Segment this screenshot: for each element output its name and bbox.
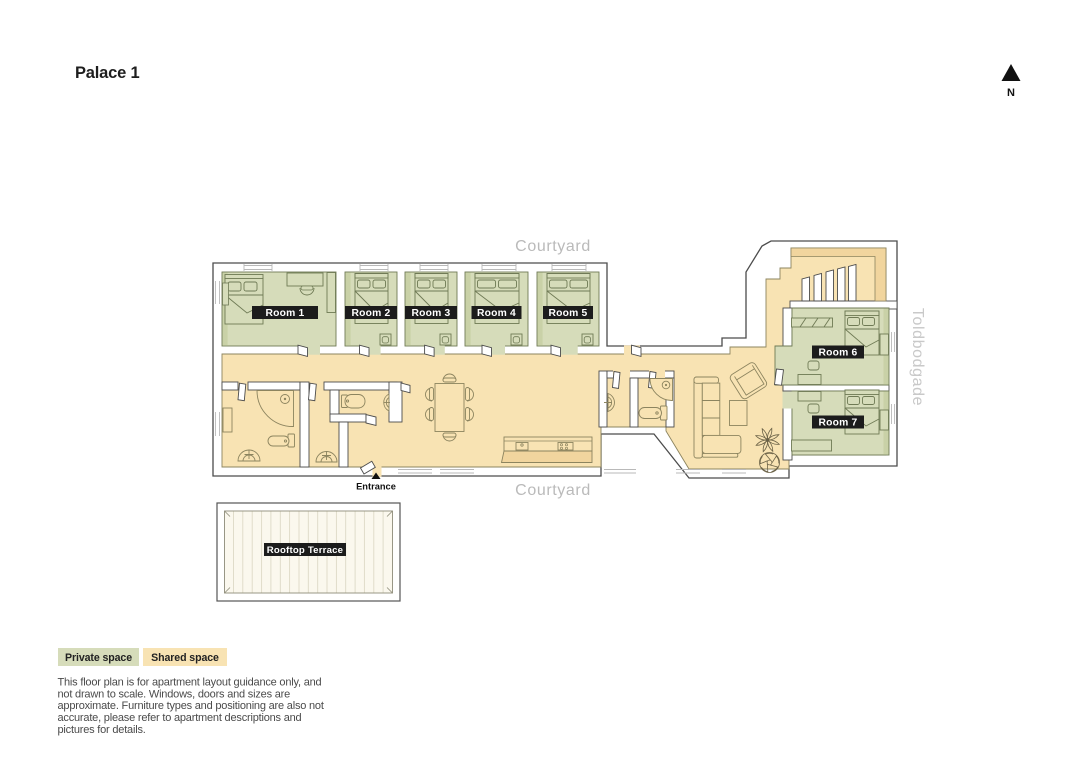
svg-text:N: N — [1007, 87, 1015, 99]
svg-text:Room 5: Room 5 — [549, 308, 588, 319]
svg-text:Toldbodgade: Toldbodgade — [909, 308, 926, 406]
svg-text:pictures for details.: pictures for details. — [58, 724, 146, 736]
svg-text:Room 6: Room 6 — [819, 347, 858, 358]
svg-text:Private space: Private space — [65, 652, 132, 664]
svg-text:Courtyard: Courtyard — [515, 482, 591, 499]
svg-text:Entrance: Entrance — [356, 482, 396, 492]
svg-text:Palace 1: Palace 1 — [75, 64, 139, 82]
svg-text:Room 3: Room 3 — [412, 308, 451, 319]
svg-text:Shared space: Shared space — [151, 652, 219, 664]
svg-text:Room 7: Room 7 — [819, 417, 858, 428]
svg-text:This floor plan is for apartme: This floor plan is for apartment layout … — [58, 676, 322, 688]
svg-text:Room 2: Room 2 — [352, 308, 391, 319]
svg-text:accurate, please refer to apar: accurate, please refer to apartment desc… — [58, 712, 302, 724]
svg-text:not drawn to scale. Windows, d: not drawn to scale. Windows, doors and s… — [58, 688, 291, 700]
svg-text:Room 4: Room 4 — [477, 308, 516, 319]
svg-text:Courtyard: Courtyard — [515, 238, 591, 255]
svg-text:Room 1: Room 1 — [266, 308, 305, 319]
svg-text:approximate. Furniture types a: approximate. Furniture types and positio… — [58, 700, 324, 712]
svg-text:Rooftop Terrace: Rooftop Terrace — [267, 545, 343, 556]
